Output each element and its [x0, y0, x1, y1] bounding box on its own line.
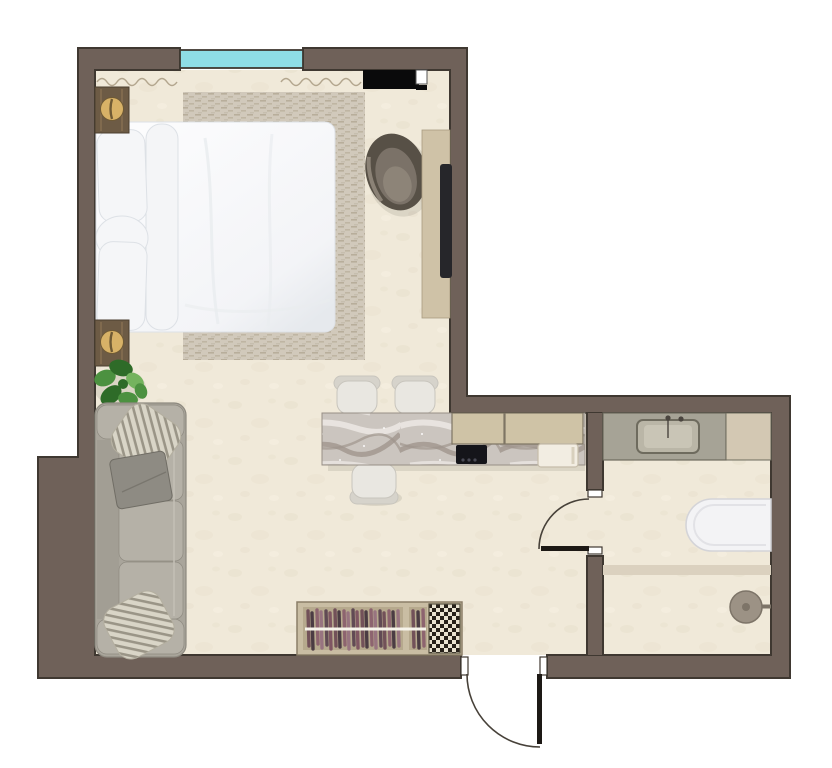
door-leaf [541, 546, 589, 551]
bed-pillow [96, 241, 147, 331]
bar-chair [334, 376, 380, 414]
floor-plan-image [0, 0, 832, 768]
wardrobe-rack [297, 602, 462, 655]
bathroom-partition-upper [587, 413, 603, 490]
wall-shelf [363, 70, 427, 90]
doorway-floor [587, 492, 603, 552]
tv [440, 164, 452, 278]
nightstand-bottom [95, 320, 129, 366]
houndstooth-mat [429, 604, 460, 653]
door-jamb [461, 657, 468, 675]
floor-plan-canvas [0, 0, 832, 768]
faucet [678, 416, 683, 421]
bathroom-partition-lower [587, 556, 603, 655]
window [180, 50, 303, 68]
double-bed [96, 122, 335, 332]
induction-cooktop [456, 445, 487, 464]
nightstand-top [95, 87, 129, 133]
bathroom-vanity [603, 413, 771, 460]
vanity-cabinet [726, 413, 771, 460]
sofa [95, 398, 187, 664]
upper-cabinet [505, 413, 583, 444]
toilet [686, 499, 771, 551]
bed-pillow [96, 129, 147, 223]
door-jamb [540, 657, 547, 675]
door-swing-arc [467, 674, 540, 747]
duvet-fold [146, 124, 178, 330]
faucet [665, 415, 670, 420]
door-leaf [537, 674, 542, 744]
gray-throw [109, 451, 173, 510]
shower-screen [603, 565, 771, 575]
bar-chair [392, 376, 438, 414]
entry-door [461, 657, 547, 747]
bar-chair [350, 464, 402, 506]
upper-cabinet [452, 413, 504, 444]
door-jamb [588, 490, 602, 497]
door-jamb [588, 547, 602, 554]
